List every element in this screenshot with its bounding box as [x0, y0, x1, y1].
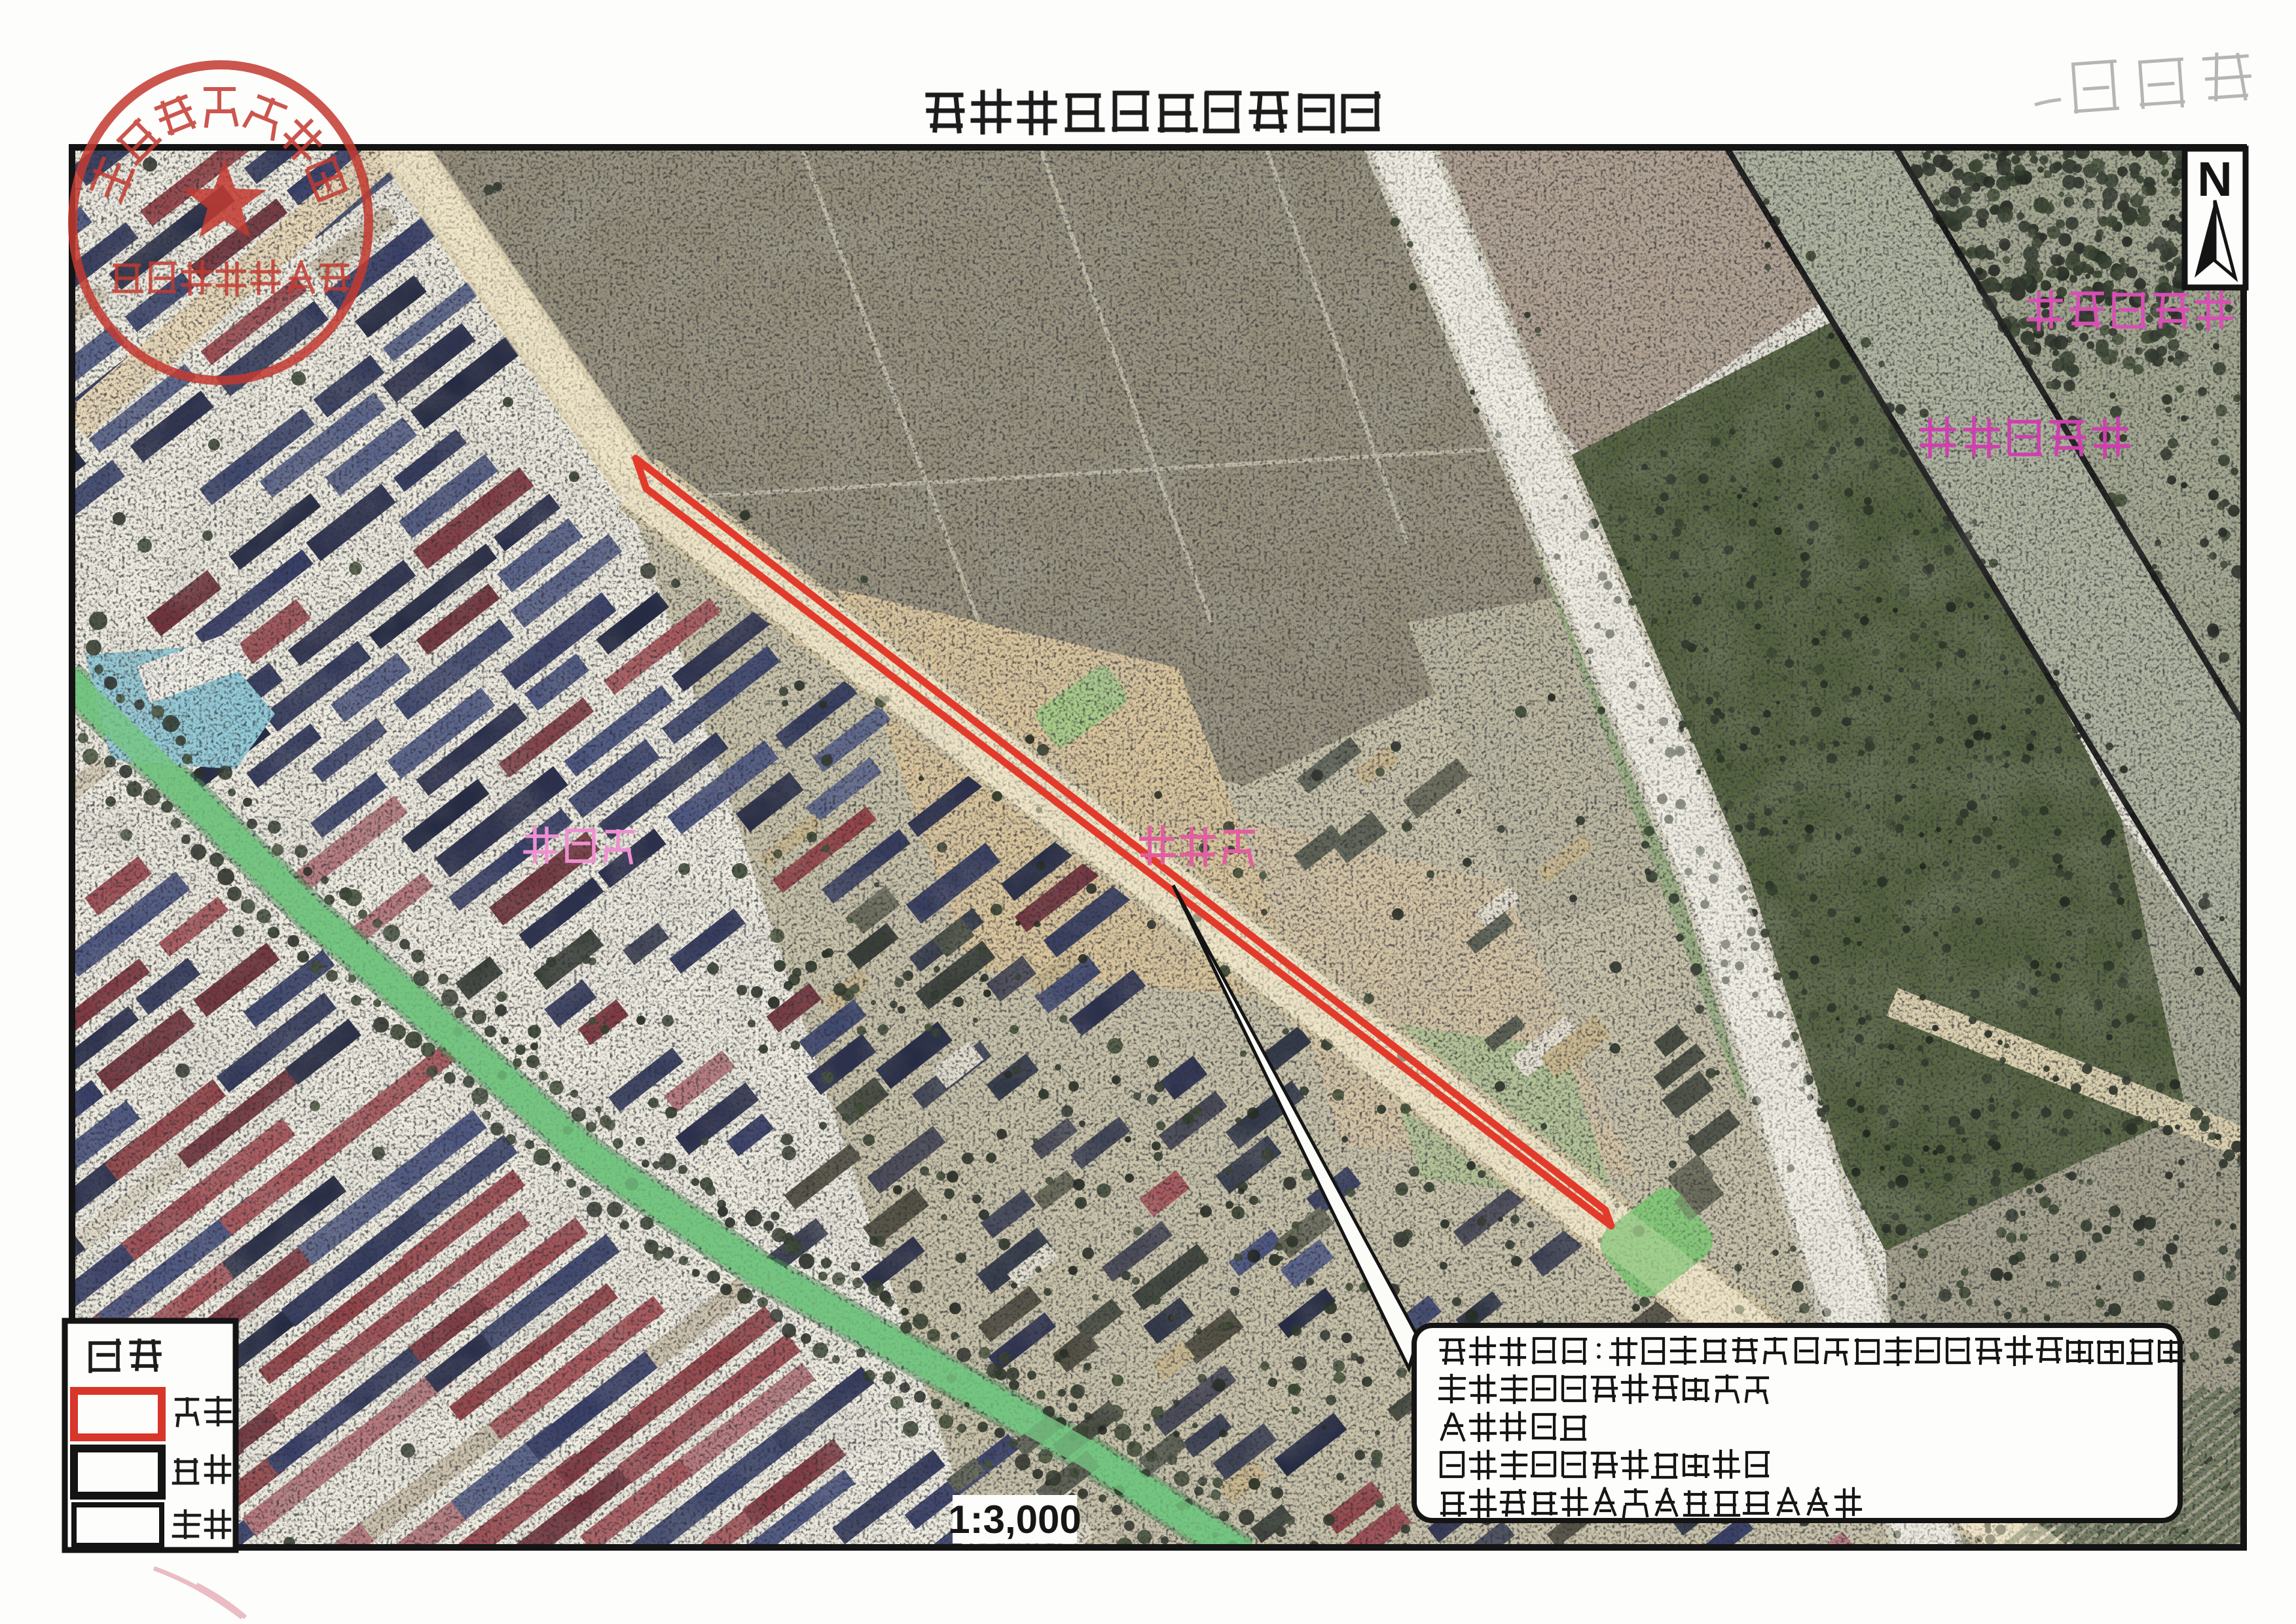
- svg-text:1:3,000: 1:3,000: [948, 1498, 1082, 1541]
- svg-text:N: N: [2197, 152, 2232, 206]
